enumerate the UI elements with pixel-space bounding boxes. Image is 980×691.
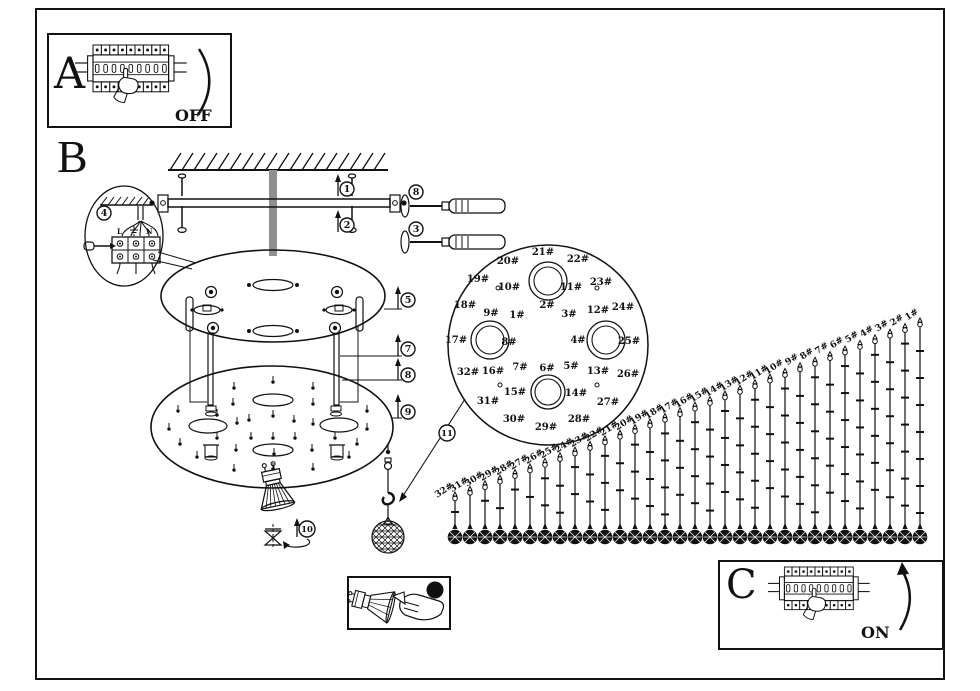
strand: 21# (598, 419, 627, 544)
hole-label: 30# (503, 414, 525, 425)
bulb-box-callout: 10 (429, 587, 442, 597)
crystal-strand-sample (344, 399, 465, 557)
hole-label: 19# (467, 274, 489, 285)
hole-label: 5# (563, 361, 578, 372)
strand: 10# (763, 358, 792, 545)
threaded-rods (190, 326, 358, 416)
callout-arrows (340, 286, 402, 418)
panel-b-letter: B (57, 134, 88, 180)
panel-a-power-off: A OFF (47, 33, 232, 128)
hole-label: 12# (587, 305, 609, 316)
strand-label: 10# (763, 358, 785, 377)
gu10-bulb (252, 459, 295, 513)
hole-label: 26# (617, 369, 639, 380)
strand: 22# (583, 425, 612, 544)
strand: 13# (718, 374, 747, 544)
callout-number: 11 (441, 429, 453, 439)
hook (383, 493, 394, 504)
hole-label: 4# (570, 335, 585, 346)
callout-number: 3 (413, 224, 420, 235)
hole-label: 3# (561, 309, 576, 320)
strand: 14# (703, 380, 732, 544)
callout-number: 2 (344, 220, 351, 231)
hole-label: 7# (512, 362, 527, 373)
callout-number: 5 (405, 295, 412, 306)
strand: 26# (523, 447, 552, 544)
mounting-bracket (149, 174, 406, 232)
panel-c-letter: C (726, 562, 757, 608)
strand: 20# (613, 414, 642, 545)
strand: 7# (814, 341, 838, 544)
gu10-bulb-small (349, 581, 397, 623)
strand: 9# (784, 352, 808, 544)
hole-label: 25# (618, 336, 640, 347)
hole-label: 13# (587, 366, 609, 377)
hole-label: 22# (567, 254, 589, 265)
strand: 2# (889, 313, 913, 545)
hole-label: 28# (568, 414, 590, 425)
bulb-insert-box: 10 (347, 576, 451, 630)
callout-number: 8 (405, 370, 412, 381)
hole-label: 10# (498, 282, 520, 293)
callout-number: 4 (101, 208, 108, 219)
wire-label-neutral: N (146, 227, 153, 236)
strand: 5# (844, 330, 868, 545)
hole-label: 27# (597, 397, 619, 408)
wire-label-live: L (117, 227, 122, 236)
arrow-head (897, 562, 909, 575)
panel-c-art: C ON (720, 562, 942, 648)
hole-label: 14# (565, 388, 587, 399)
strand: 18# (643, 403, 672, 545)
hole-label: 8# (501, 337, 516, 348)
power-on-label: ON (861, 623, 890, 642)
hole-label: 18# (454, 300, 476, 311)
strand: 4# (859, 324, 883, 544)
strand: 23# (568, 431, 597, 545)
callout-number: 10 (301, 525, 313, 535)
strand-label: 1# (904, 307, 921, 323)
strand: 12# (733, 369, 762, 544)
hole-label: 32# (457, 367, 479, 378)
strand: 6# (829, 335, 853, 544)
hole-label: 1# (509, 310, 524, 321)
hole-label: 31# (477, 396, 499, 407)
strand: 8# (799, 346, 823, 544)
strand: 3# (874, 318, 898, 544)
callout-number: 9 (405, 407, 412, 418)
canopy-plate (161, 250, 385, 342)
bulb-insert-art: 10 (349, 578, 449, 628)
ceiling-hatch (168, 153, 388, 170)
panel-a-letter: A (53, 49, 86, 99)
installation-instruction-sheet: L N (0, 0, 980, 691)
hole-label: 29# (535, 422, 557, 433)
strand: 24# (553, 436, 582, 544)
hole-label: 2# (539, 300, 554, 311)
hole-label: 9# (483, 308, 498, 319)
panel-a-art: A OFF (49, 35, 230, 126)
callout-number: 1 (344, 184, 351, 195)
hole-position-detail: 1#2#3#4#5#6#7#8#9#10#11#12#13#14#15#16#1… (445, 245, 648, 445)
hole-label: 24# (612, 302, 634, 313)
power-off-label: OFF (175, 106, 212, 125)
center-pipe (269, 170, 277, 256)
hole-label: 6# (539, 363, 554, 374)
hole-label: 17# (445, 335, 467, 346)
hole-label: 11# (560, 282, 582, 293)
callout-number: 7 (405, 344, 412, 355)
rotate-arrow-arc (900, 572, 910, 630)
hole-label: 21# (532, 247, 554, 258)
hole-label: 16# (482, 366, 504, 377)
hole-label: 23# (590, 277, 612, 288)
panel-c-power-on: C ON (718, 560, 944, 650)
callout-number: 8 (413, 187, 420, 198)
hole-label: 15# (504, 387, 526, 398)
hole-label: 20# (497, 256, 519, 267)
